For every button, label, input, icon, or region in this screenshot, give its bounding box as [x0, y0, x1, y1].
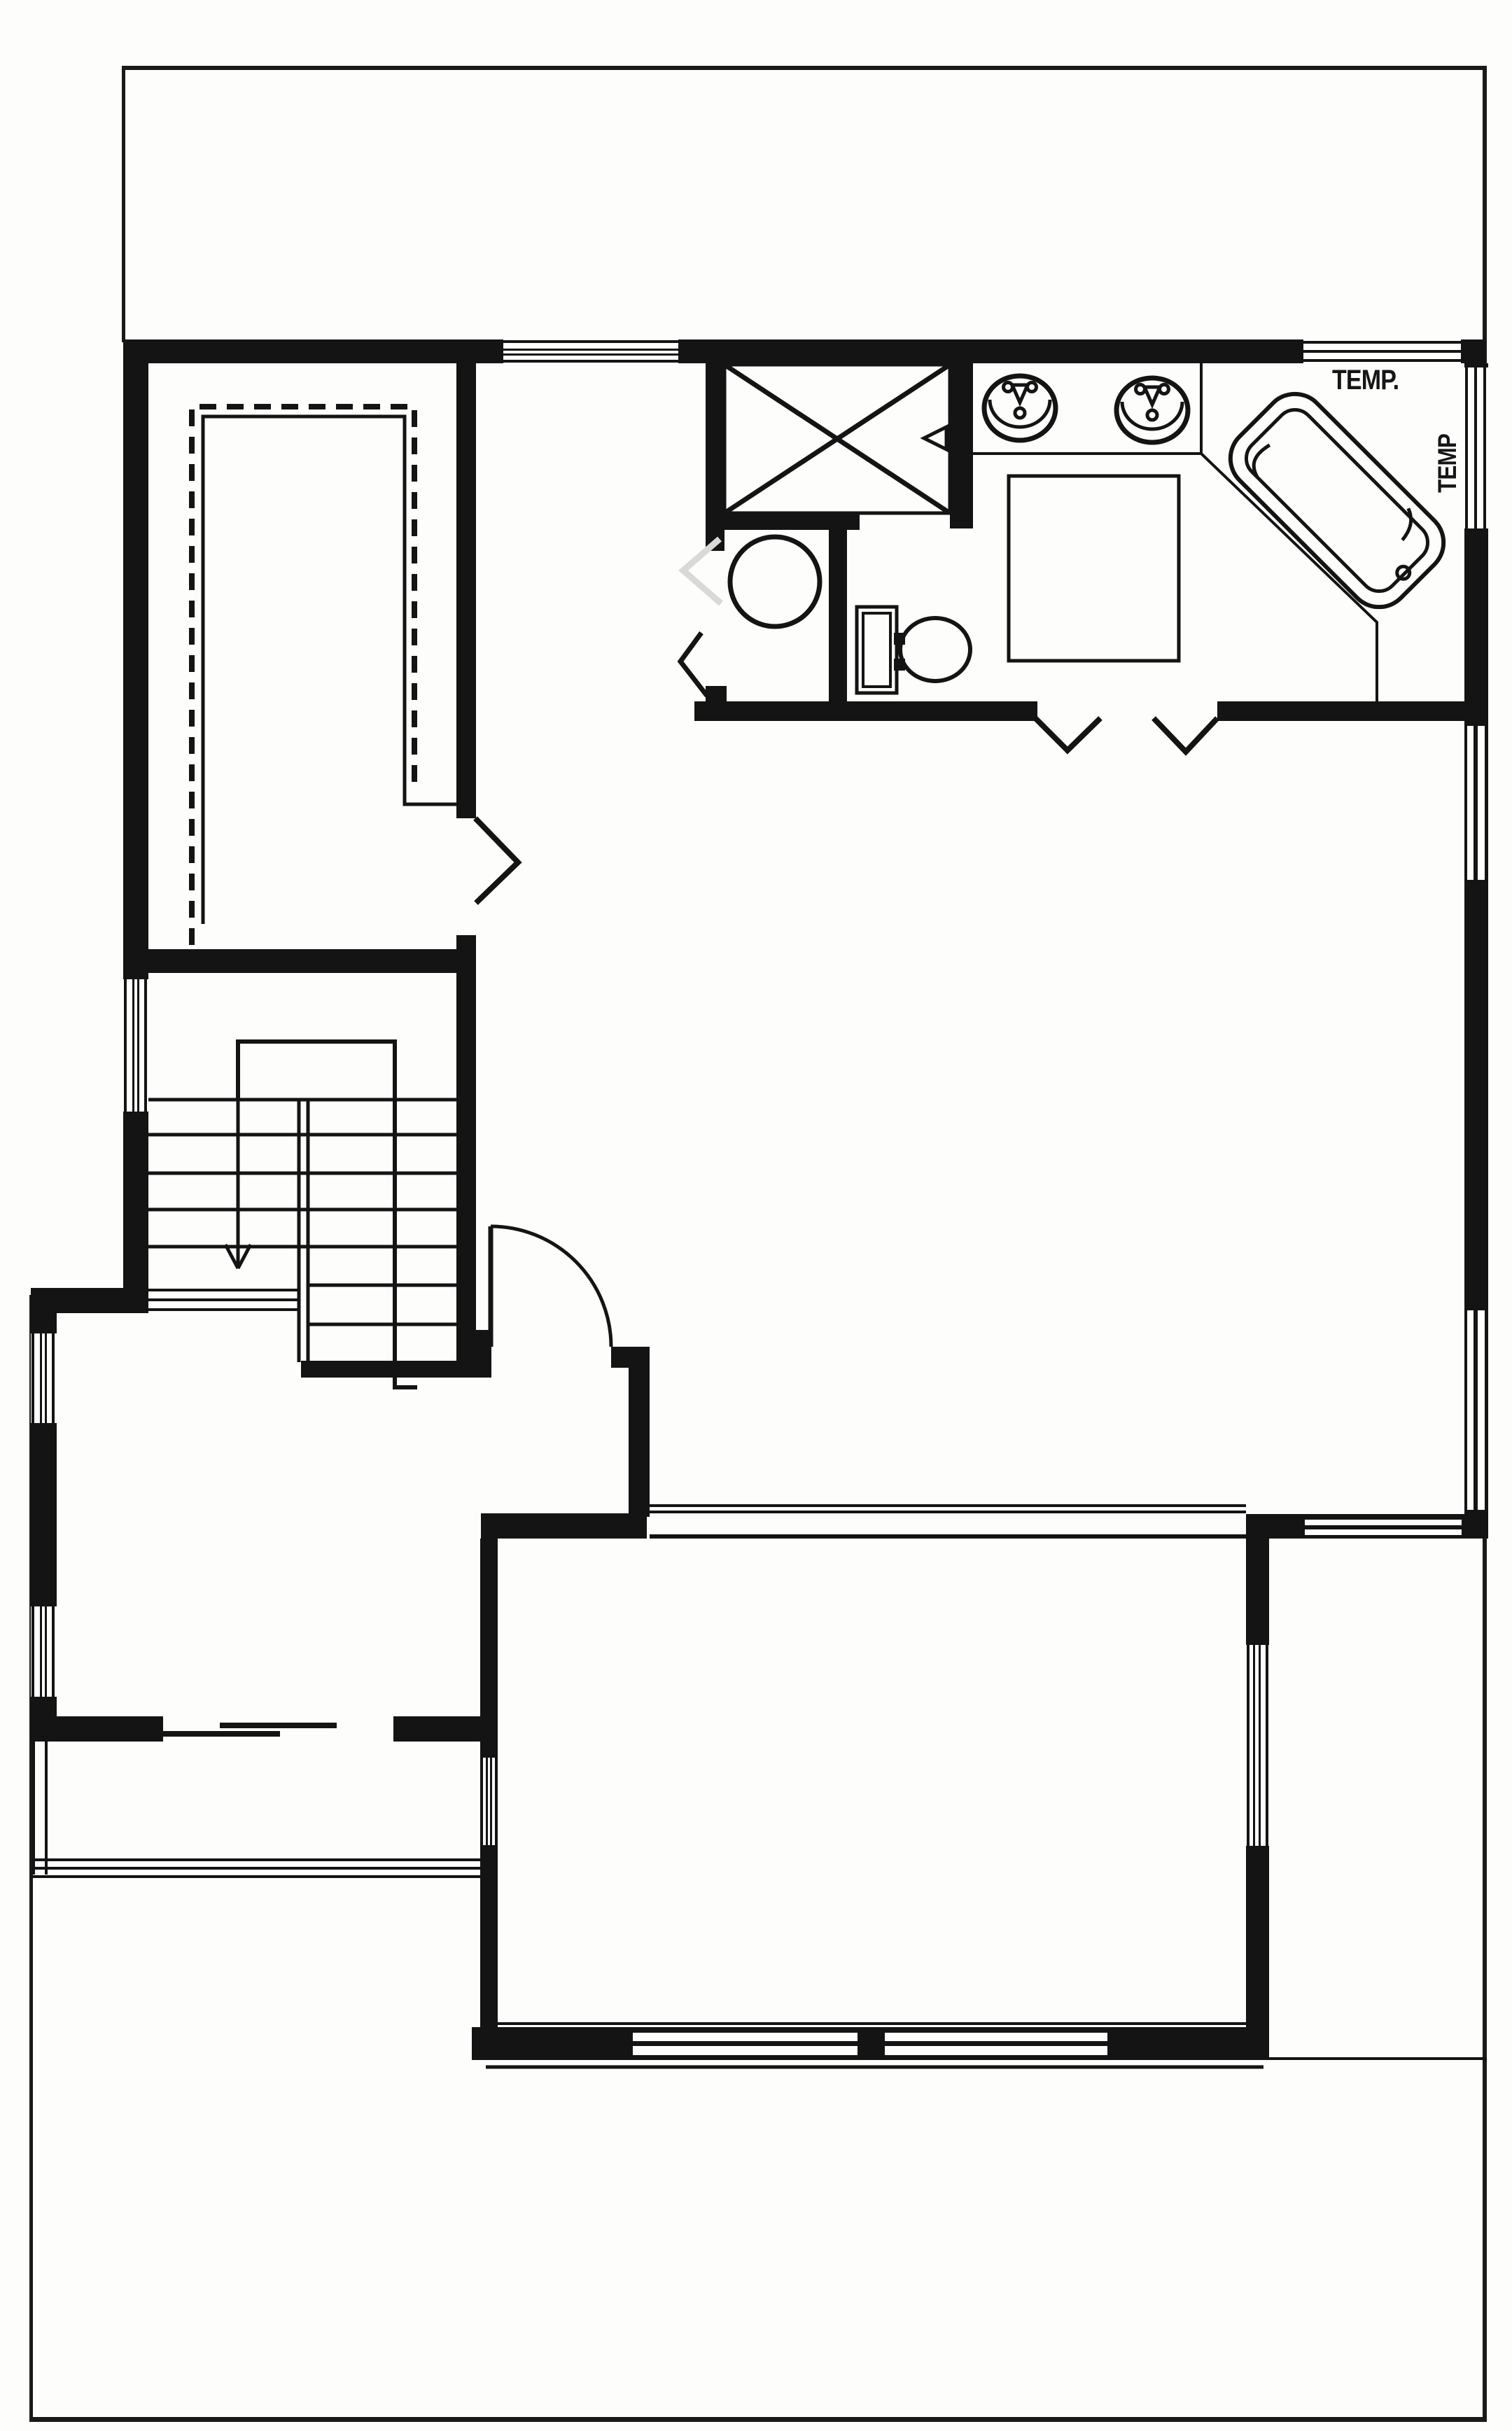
svg-text:TEMP.: TEMP.: [1332, 363, 1399, 395]
svg-text:TEMP: TEMP: [1434, 434, 1462, 493]
